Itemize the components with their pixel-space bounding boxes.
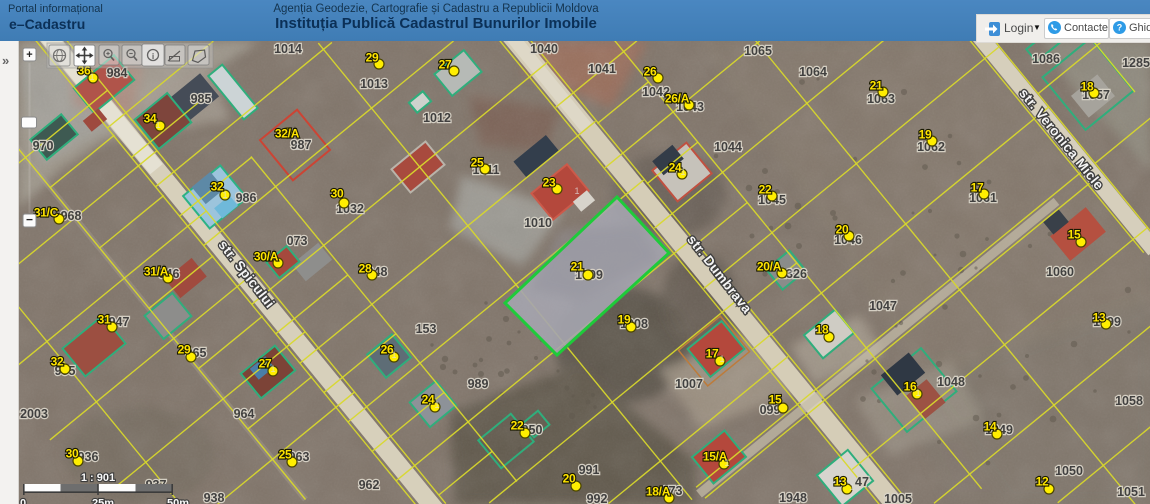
svg-text:32/A: 32/A — [275, 127, 300, 141]
svg-text:1050: 1050 — [1055, 464, 1083, 478]
svg-text:26/A: 26/A — [665, 92, 690, 106]
svg-text:938: 938 — [204, 491, 225, 504]
svg-text:29: 29 — [366, 51, 379, 65]
svg-text:962: 962 — [359, 478, 380, 492]
svg-text:986: 986 — [236, 191, 257, 205]
svg-text:1: 1 — [680, 167, 685, 177]
svg-text:989: 989 — [468, 377, 489, 391]
svg-text:1: 1 — [434, 400, 439, 410]
svg-text:31/A: 31/A — [144, 265, 169, 279]
svg-text:22: 22 — [759, 183, 772, 197]
svg-text:18/A: 18/A — [646, 485, 671, 499]
svg-text:1: 1 — [849, 482, 854, 492]
svg-text:50m: 50m — [167, 498, 189, 504]
svg-text:18: 18 — [1081, 80, 1094, 94]
svg-text:1: 1 — [574, 186, 579, 196]
svg-text:22: 22 — [511, 419, 524, 433]
svg-text:27: 27 — [439, 58, 452, 72]
svg-text:13: 13 — [1093, 311, 1106, 325]
svg-text:1065: 1065 — [744, 44, 772, 58]
svg-text:992: 992 — [587, 492, 608, 504]
svg-text:991: 991 — [579, 463, 600, 477]
svg-text:1014: 1014 — [274, 42, 302, 56]
svg-text:30/A: 30/A — [254, 250, 279, 264]
svg-text:13: 13 — [834, 475, 847, 489]
svg-text:1: 1 — [294, 142, 299, 152]
svg-text:29: 29 — [178, 343, 191, 357]
svg-text:1010: 1010 — [524, 216, 552, 230]
svg-text:1: 1 — [724, 458, 729, 468]
svg-text:20/A: 20/A — [757, 260, 782, 274]
svg-text:23: 23 — [543, 176, 556, 190]
svg-text:1013: 1013 — [360, 77, 388, 91]
svg-text:+: + — [26, 49, 32, 61]
svg-text:30: 30 — [66, 447, 79, 461]
svg-text:073: 073 — [287, 234, 308, 248]
svg-text:1: 1 — [270, 364, 275, 374]
svg-text:21: 21 — [571, 260, 584, 274]
svg-text:12: 12 — [1036, 475, 1049, 489]
svg-text:1007: 1007 — [675, 377, 703, 391]
svg-text:25: 25 — [471, 156, 484, 170]
svg-text:1: 1 — [788, 266, 793, 276]
svg-text:17: 17 — [971, 181, 984, 195]
svg-text:25: 25 — [279, 448, 292, 462]
svg-text:26: 26 — [644, 65, 657, 79]
svg-text:1044: 1044 — [714, 140, 742, 154]
svg-text:153: 153 — [416, 322, 437, 336]
svg-text:1058: 1058 — [1115, 394, 1143, 408]
svg-text:18: 18 — [816, 323, 829, 337]
svg-text:25m: 25m — [92, 498, 114, 504]
svg-text:32: 32 — [51, 355, 64, 369]
svg-text:20: 20 — [563, 472, 576, 486]
svg-text:1060: 1060 — [1046, 265, 1074, 279]
svg-text:1086: 1086 — [1032, 52, 1060, 66]
svg-text:1047: 1047 — [869, 299, 897, 313]
svg-text:20: 20 — [836, 223, 849, 237]
svg-text:17: 17 — [706, 347, 719, 361]
svg-text:1 : 901: 1 : 901 — [81, 472, 115, 484]
svg-text:1: 1 — [222, 190, 227, 200]
svg-text:30: 30 — [331, 187, 344, 201]
svg-text:1: 1 — [719, 354, 724, 364]
svg-text:14: 14 — [984, 420, 997, 434]
svg-text:1285: 1285 — [1122, 56, 1150, 70]
svg-text:2003: 2003 — [20, 407, 48, 421]
svg-text:24: 24 — [422, 393, 435, 407]
svg-text:1040: 1040 — [530, 42, 558, 56]
svg-text:31/C: 31/C — [34, 206, 59, 220]
svg-text:15: 15 — [769, 393, 782, 407]
svg-text:47: 47 — [855, 475, 869, 489]
svg-text:964: 964 — [234, 407, 255, 421]
svg-text:1948: 1948 — [779, 491, 807, 504]
svg-text:31: 31 — [98, 313, 111, 327]
svg-text:1: 1 — [89, 72, 94, 82]
svg-text:?: ? — [1117, 22, 1123, 32]
svg-text:1005: 1005 — [884, 492, 912, 504]
svg-text:19: 19 — [618, 313, 631, 327]
svg-text:19: 19 — [919, 128, 932, 142]
svg-text:1: 1 — [155, 120, 160, 130]
svg-text:21: 21 — [870, 79, 883, 93]
svg-text:1: 1 — [391, 350, 396, 360]
svg-text:28: 28 — [359, 262, 372, 276]
svg-text:1051: 1051 — [1117, 485, 1145, 499]
svg-text:0: 0 — [20, 498, 26, 504]
svg-text:i: i — [152, 51, 154, 61]
svg-text:1012: 1012 — [423, 111, 451, 125]
svg-text:1: 1 — [915, 388, 920, 398]
svg-text:985: 985 — [191, 92, 212, 106]
svg-text:15: 15 — [1068, 228, 1081, 242]
svg-text:1064: 1064 — [799, 65, 827, 79]
svg-text:970: 970 — [33, 139, 54, 153]
svg-text:1041: 1041 — [588, 62, 616, 76]
svg-text:−: − — [26, 213, 33, 227]
svg-text:1048: 1048 — [937, 375, 965, 389]
